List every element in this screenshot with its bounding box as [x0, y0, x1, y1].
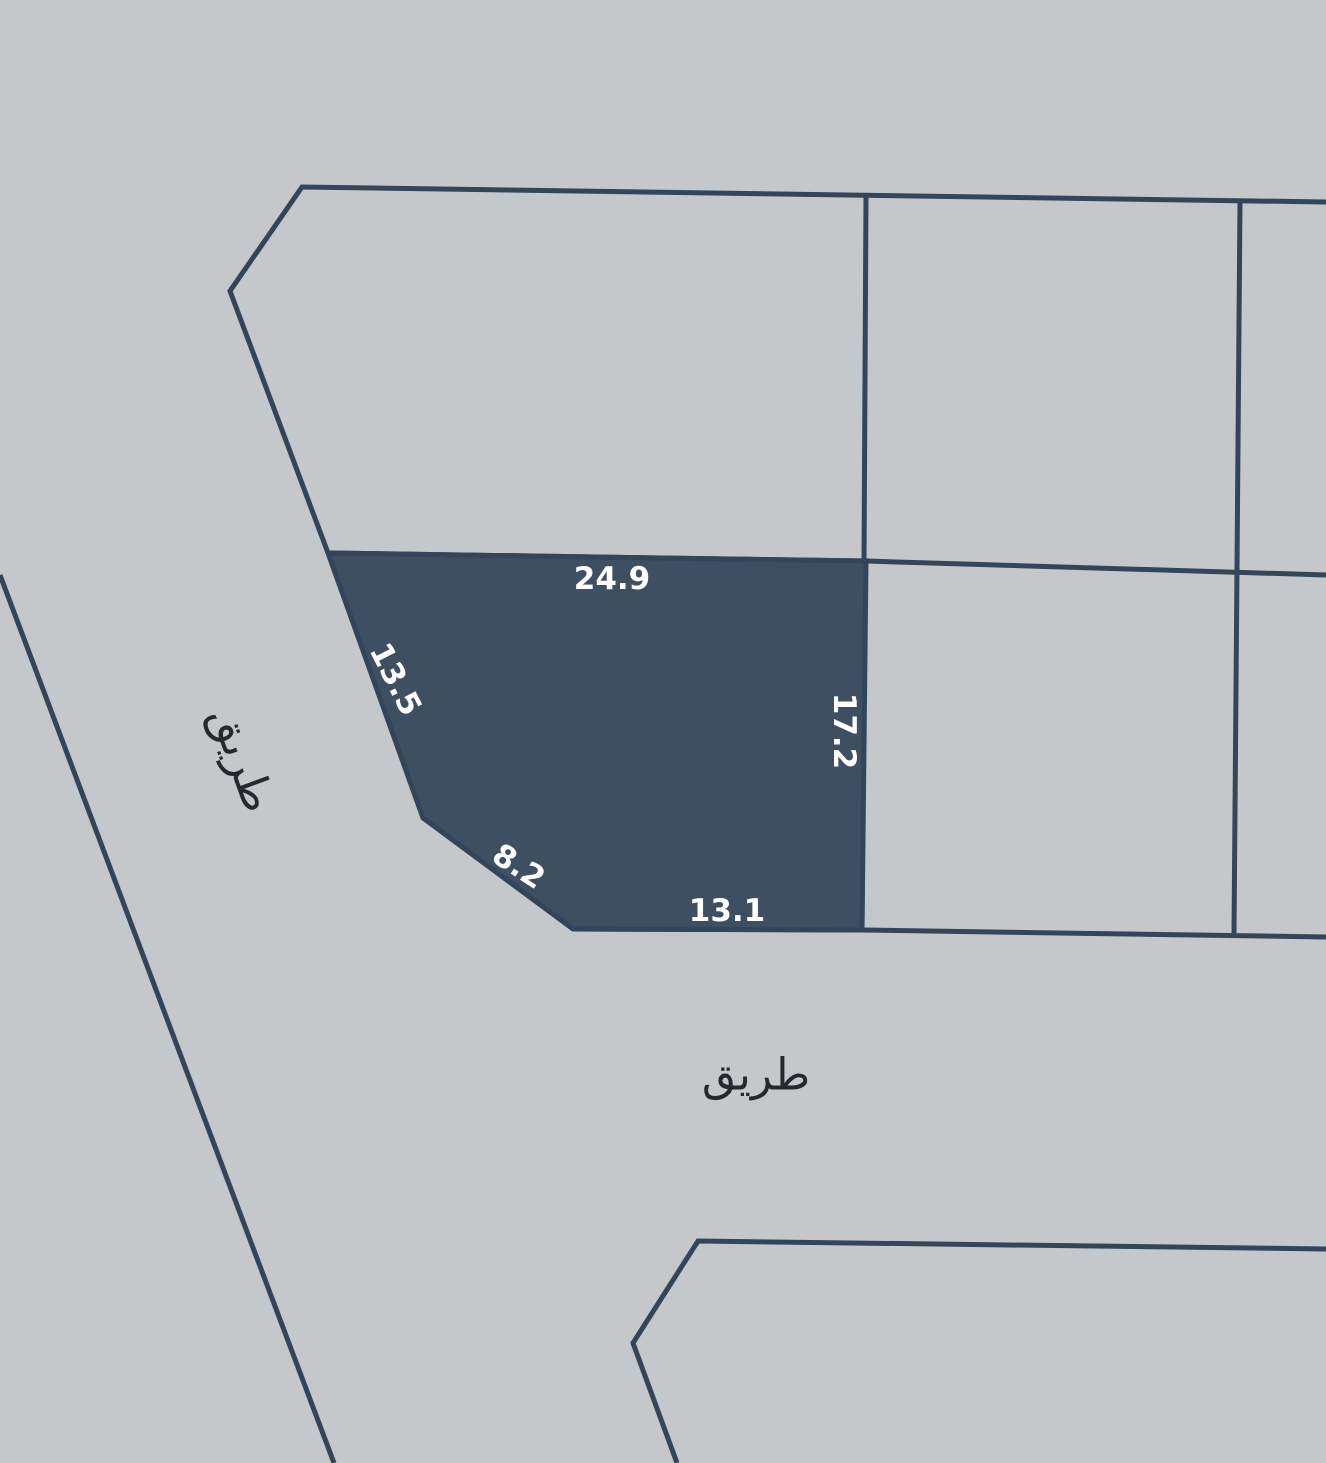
parcel-map-canvas[interactable]: 24.9 13.5 17.2 8.2 13.1 طريق طريق — [0, 0, 1326, 1463]
dimension-label-bottom: 13.1 — [689, 893, 766, 929]
dimension-label-right: 17.2 — [826, 693, 862, 770]
road-label-south: طريق — [702, 1049, 810, 1100]
dimension-label-top: 24.9 — [574, 561, 651, 597]
map-stage: 24.9 13.5 17.2 8.2 13.1 طريق طريق — [0, 0, 1326, 1463]
